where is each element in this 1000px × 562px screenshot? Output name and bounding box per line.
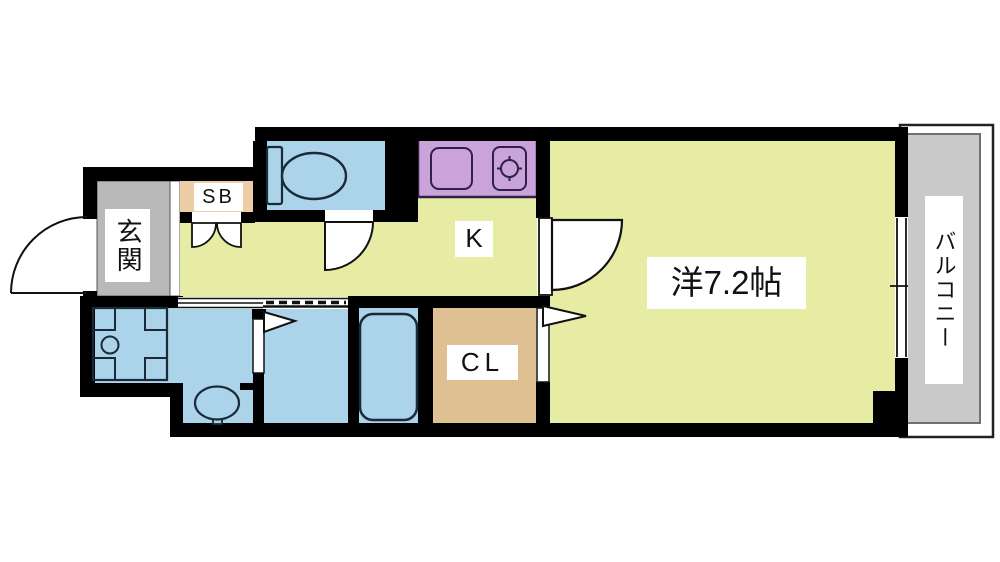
wall	[83, 296, 183, 308]
wall	[255, 127, 908, 141]
washroom-door-leaf	[253, 319, 264, 373]
wall	[873, 391, 908, 423]
wall	[895, 356, 908, 393]
wall	[253, 141, 267, 222]
wall	[536, 382, 550, 423]
entrance-step	[170, 181, 180, 296]
shoebox-door-opening	[192, 212, 241, 223]
wall	[83, 167, 257, 181]
wall	[240, 383, 253, 390]
wall	[241, 212, 255, 223]
room-door-leaf	[539, 218, 552, 295]
kitchen-counter	[418, 138, 537, 197]
sliding-door	[178, 297, 263, 309]
western-room-label: 洋7.2帖	[647, 257, 806, 309]
kitchen-label: K	[455, 221, 493, 257]
wall	[348, 296, 550, 308]
wall	[536, 141, 550, 218]
balcony-label: バルコニー	[925, 196, 963, 384]
wall	[373, 210, 385, 222]
wall	[80, 383, 183, 397]
wall	[253, 373, 264, 423]
floor-plan-drawing	[0, 0, 1000, 562]
toilet-door-opening	[325, 210, 373, 222]
wall	[83, 181, 97, 219]
wall	[385, 141, 418, 222]
washroom-floor	[93, 308, 253, 383]
entrance-label: 玄関	[105, 209, 150, 282]
entrance-door-arc	[11, 217, 87, 293]
wall	[348, 308, 359, 423]
wall	[418, 308, 433, 423]
wall	[170, 423, 908, 437]
closet-label: CL	[447, 345, 518, 380]
dashed-boundary	[263, 297, 348, 309]
wall	[267, 210, 325, 222]
wall	[895, 127, 908, 218]
bathtub-room-floor	[359, 308, 418, 423]
floor-plan: 玄関 SB K CL 洋7.2帖 バルコニー	[0, 0, 1000, 562]
wall	[180, 212, 192, 223]
shoe-box-label: SB	[194, 183, 243, 211]
